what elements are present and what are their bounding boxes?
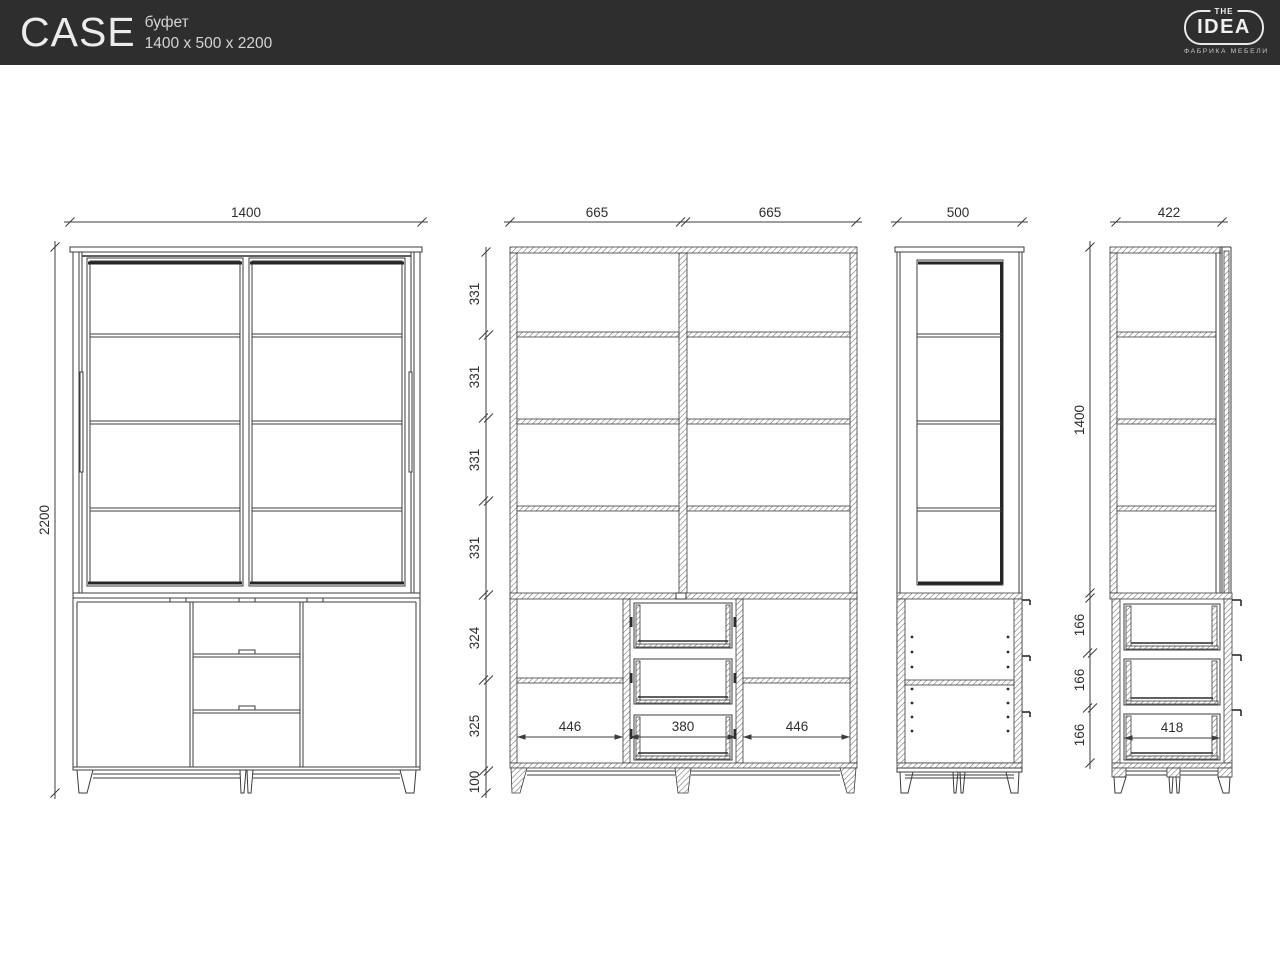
side-drawer-1 bbox=[1124, 604, 1220, 650]
dim-drawer-chain: 166 166 166 bbox=[1072, 594, 1097, 770]
dim-label-324: 324 bbox=[467, 626, 482, 649]
front-feet bbox=[77, 770, 416, 793]
dim-label-446-left: 446 bbox=[559, 719, 582, 734]
dim-label-331-2: 331 bbox=[467, 366, 482, 389]
dim-side-width: 500 bbox=[891, 205, 1028, 227]
dim-front-height: 2200 bbox=[37, 241, 60, 799]
drawer-front-hooks bbox=[1232, 600, 1241, 716]
logo-idea-text: IDEA bbox=[1197, 16, 1251, 39]
side-carcass bbox=[895, 247, 1030, 768]
dim-label-1400: 1400 bbox=[1072, 405, 1087, 435]
brand-logo: THE IDEA ФАБРИКА МЕБЕЛИ bbox=[1184, 10, 1264, 55]
dim-label-front-width: 1400 bbox=[231, 205, 261, 220]
dim-label-100: 100 bbox=[467, 771, 482, 794]
door-handle-right bbox=[409, 372, 412, 472]
view-front-section: 665 665 331 331 331 331 324 325 10 bbox=[467, 205, 862, 798]
dim-label-166-2: 166 bbox=[1072, 669, 1087, 692]
product-dimensions: 1400 x 500 x 2200 bbox=[145, 34, 273, 54]
side-shelf-lines bbox=[917, 334, 1002, 511]
title-block: CASE буфет 1400 x 500 x 2200 bbox=[20, 11, 272, 53]
logo-the-text: THE bbox=[1211, 6, 1238, 17]
view-front: 1400 2200 bbox=[37, 205, 428, 799]
side-feet bbox=[897, 768, 1022, 793]
dim-label-front-height: 2200 bbox=[37, 505, 52, 535]
dim-side-section-width: 422 bbox=[1110, 205, 1228, 227]
header-bar: CASE буфет 1400 x 500 x 2200 THE IDEA ФА… bbox=[0, 0, 1280, 65]
dim-label-166-3: 166 bbox=[1072, 724, 1087, 747]
side-section-upper bbox=[1110, 247, 1231, 598]
technical-drawing: 1400 2200 bbox=[0, 65, 1280, 960]
product-type: буфет bbox=[145, 13, 273, 33]
dim-drawer-width: 418 bbox=[1124, 720, 1220, 741]
dim-upper-height: 1400 bbox=[1072, 241, 1095, 599]
dim-label-422: 422 bbox=[1158, 205, 1181, 220]
dim-label-side-width: 500 bbox=[947, 205, 970, 220]
glass-shelves-right bbox=[252, 334, 402, 511]
product-subtitle: буфет 1400 x 500 x 2200 bbox=[145, 11, 273, 53]
dim-label-331-1: 331 bbox=[467, 283, 482, 306]
page: CASE буфет 1400 x 500 x 2200 THE IDEA ФА… bbox=[0, 0, 1280, 960]
side-drawer-2 bbox=[1124, 659, 1220, 705]
side-section-feet bbox=[1112, 768, 1232, 793]
logo-pill: THE IDEA bbox=[1184, 10, 1264, 45]
dim-label-325: 325 bbox=[467, 715, 482, 738]
glass-shelves-left bbox=[90, 334, 240, 511]
section-feet bbox=[511, 768, 856, 793]
dim-label-380: 380 bbox=[672, 719, 695, 734]
product-name: CASE bbox=[20, 12, 136, 53]
front-sliding-door-left bbox=[87, 258, 243, 586]
dim-label-665-left: 665 bbox=[586, 205, 609, 220]
logo-tagline: ФАБРИКА МЕБЕЛИ bbox=[1184, 48, 1264, 55]
dim-label-331-3: 331 bbox=[467, 449, 482, 472]
dim-label-166-1: 166 bbox=[1072, 614, 1087, 637]
front-sliding-door-right bbox=[249, 258, 405, 586]
dim-label-331-4: 331 bbox=[467, 537, 482, 560]
dim-section-height-chain: 331 331 331 331 324 325 100 bbox=[467, 247, 493, 798]
view-side: 500 bbox=[891, 205, 1030, 793]
dim-inner-widths: 446 380 446 bbox=[517, 719, 850, 740]
section-drawer-2 bbox=[630, 659, 737, 704]
view-side-section: 422 1400 166 166 166 bbox=[1072, 205, 1241, 793]
door-handle-left bbox=[80, 372, 83, 472]
side-section-lower: 418 bbox=[1110, 593, 1241, 768]
dim-label-446-right: 446 bbox=[786, 719, 809, 734]
section-drawers bbox=[630, 603, 737, 760]
drawer-front-edges bbox=[1022, 600, 1030, 717]
dim-label-665-right: 665 bbox=[759, 205, 782, 220]
dim-label-418: 418 bbox=[1161, 720, 1184, 735]
front-lower-cabinet bbox=[73, 598, 420, 770]
section-drawer-1 bbox=[630, 603, 737, 648]
dim-section-widths: 665 665 bbox=[504, 205, 862, 227]
section-carcass bbox=[510, 247, 857, 768]
dim-front-width: 1400 bbox=[64, 205, 428, 227]
